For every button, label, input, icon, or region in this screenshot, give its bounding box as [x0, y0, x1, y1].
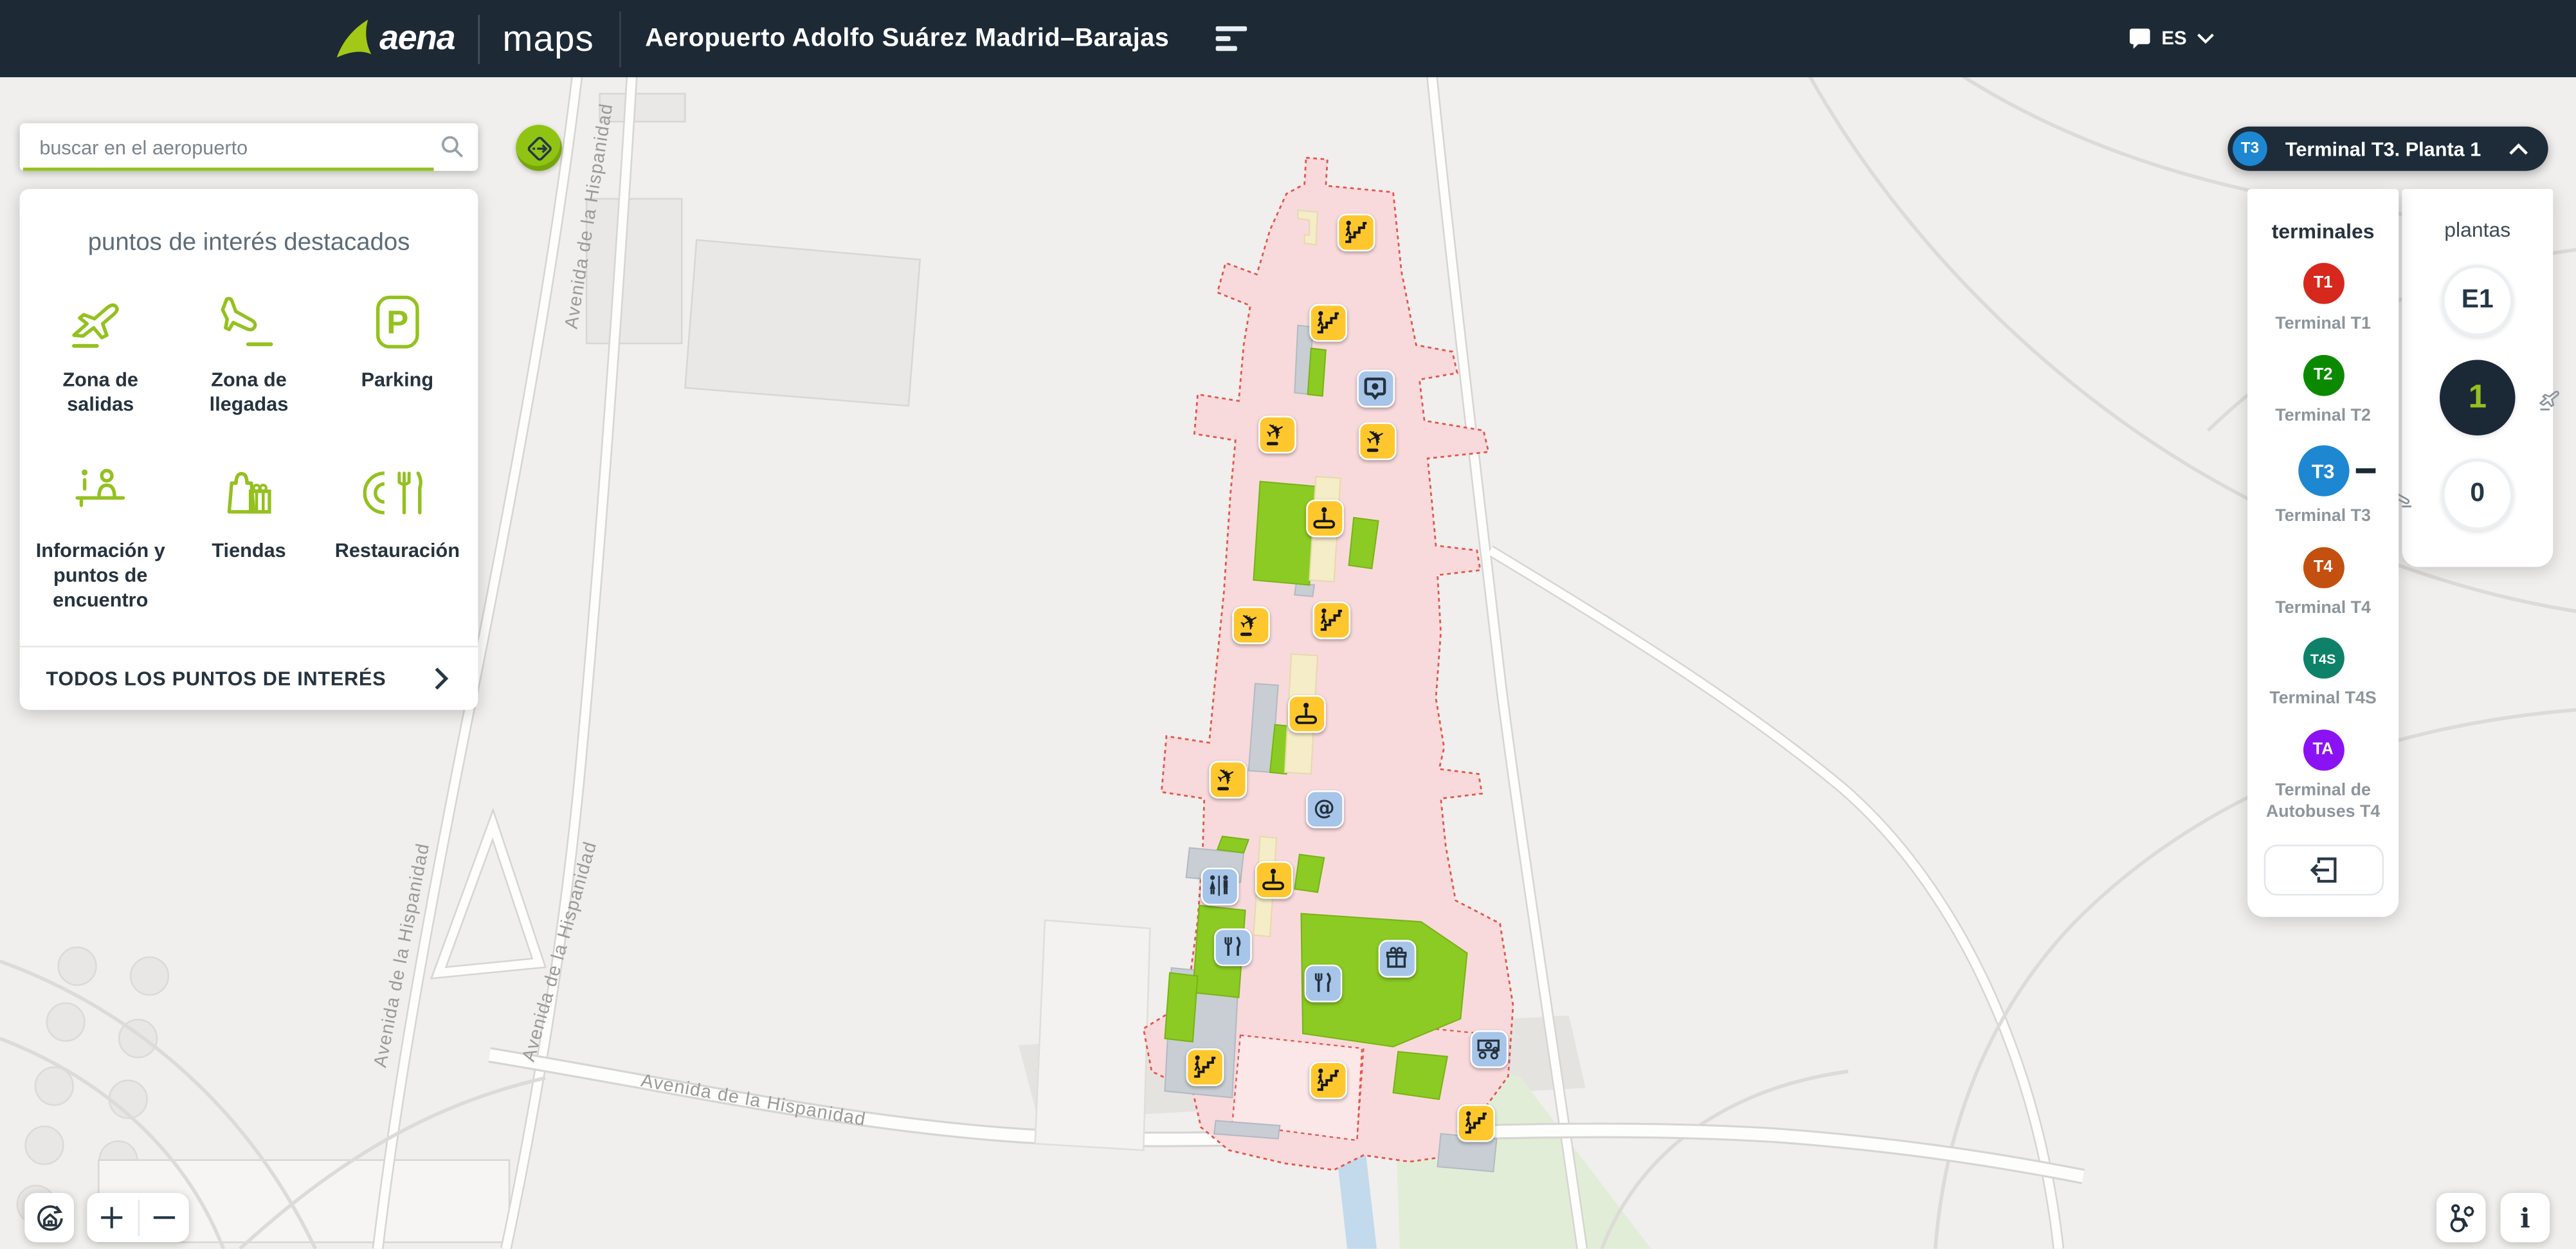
- floor-item-0[interactable]: 0: [2402, 459, 2553, 531]
- zoom-in-button[interactable]: [87, 1193, 137, 1243]
- aena-bird-icon: [334, 17, 373, 60]
- poi-item-information[interactable]: Información y puntos de encuentro: [26, 460, 175, 613]
- plane-departure-icon: [66, 289, 135, 355]
- all-poi-label: TODOS LOS PUNTOS DE INTERÉS: [46, 667, 434, 690]
- divider: [619, 11, 621, 67]
- product-name: maps: [502, 17, 594, 60]
- stairs-marker[interactable]: [1309, 303, 1347, 341]
- poi-heading: puntos de interés destacados: [20, 189, 478, 266]
- svg-text:P: P: [386, 304, 408, 341]
- poi-item-restaurants[interactable]: Restauración: [323, 460, 471, 613]
- floors-panel: plantas E1 1 0: [2402, 189, 2553, 567]
- language-selector[interactable]: ES: [2127, 0, 2215, 77]
- brand-name: aena: [379, 19, 455, 58]
- terminal-floor-pill[interactable]: T3 Terminal T3. Planta 1: [2227, 127, 2548, 171]
- terminal-label: Terminal T4: [2275, 597, 2371, 618]
- poi-item-shops[interactable]: Tiendas: [175, 460, 323, 613]
- minus-icon: [150, 1205, 177, 1231]
- walkway-marker[interactable]: [1305, 498, 1343, 536]
- floor-circle: 0: [2442, 459, 2514, 531]
- poi-label: Zona de llegadas: [183, 368, 314, 417]
- zoom-out-button[interactable]: [139, 1193, 189, 1243]
- walkway-marker[interactable]: [1255, 860, 1293, 898]
- terminal-circle: TA: [2303, 729, 2344, 770]
- accessibility-icon: [2445, 1201, 2478, 1234]
- divider: [478, 14, 480, 64]
- poi-label: Zona de salidas: [35, 368, 166, 417]
- stairs-marker[interactable]: [1336, 213, 1374, 251]
- poi-panel: puntos de interés destacados Zona de sal…: [20, 189, 478, 710]
- search-underline: [23, 168, 434, 171]
- stairs-marker[interactable]: [1312, 601, 1350, 639]
- speech-bubble-icon: [2127, 26, 2152, 51]
- directions-button[interactable]: [516, 125, 562, 171]
- terminal-item-t4[interactable]: T4 Terminal T4: [2247, 547, 2399, 618]
- selected-terminal-dash: [2356, 469, 2376, 473]
- plane-departure-marker[interactable]: ✈: [1231, 605, 1269, 643]
- meeting-point-marker[interactable]: [1356, 369, 1394, 407]
- terminal-label: Terminal T2: [2275, 405, 2371, 426]
- terminal-circle: T4: [2303, 547, 2344, 588]
- poi-label: Información y puntos de encuentro: [35, 539, 166, 613]
- terminal-circle: T4S: [2303, 638, 2344, 679]
- stairs-marker[interactable]: [1456, 1104, 1494, 1142]
- walkway-marker[interactable]: [1287, 694, 1325, 732]
- terminal-item-t2[interactable]: T2 Terminal T2: [2247, 354, 2399, 426]
- terminal-circle: T1: [2303, 263, 2344, 304]
- terminal-label: Terminal T1: [2275, 314, 2371, 334]
- terminal-item-ta[interactable]: TA Terminal de Autobuses T4: [2247, 729, 2399, 822]
- chevron-right-icon: [433, 667, 448, 690]
- exchange-marker[interactable]: [1469, 1030, 1507, 1068]
- collapse-panel-button[interactable]: [2264, 844, 2384, 895]
- terminal-label: Terminal T3: [2275, 506, 2371, 527]
- chevron-down-icon: [2197, 33, 2215, 44]
- terminal-item-t1[interactable]: T1 Terminal T1: [2247, 263, 2399, 334]
- terminals-heading: terminales: [2247, 189, 2399, 243]
- info-desk-icon: [66, 460, 135, 525]
- terminal-badge: T3: [2233, 131, 2267, 166]
- plane-departure-marker[interactable]: ✈: [1208, 760, 1246, 798]
- gift-marker[interactable]: [1377, 939, 1415, 977]
- aena-logo[interactable]: aena: [334, 17, 455, 60]
- terminal-item-t4s[interactable]: T4S Terminal T4S: [2247, 638, 2399, 709]
- exit-icon: [2307, 853, 2341, 888]
- chevron-up-icon: [2508, 142, 2528, 155]
- terminal-label: Terminal de Autobuses T4: [2256, 780, 2391, 821]
- plane-departure-marker[interactable]: ✈: [1258, 415, 1296, 453]
- directions-icon: [525, 134, 552, 161]
- search-input[interactable]: [36, 134, 440, 160]
- terminal-floor-label: Terminal T3. Planta 1: [2285, 137, 2508, 160]
- poi-label: Parking: [361, 368, 433, 392]
- home-reset-icon: [33, 1202, 65, 1234]
- poi-grid: Zona de salidas Zona de llegadas P Parki…: [20, 266, 478, 646]
- plane-arrival-icon: [214, 289, 283, 355]
- stairs-marker[interactable]: [1185, 1048, 1223, 1086]
- poi-label: Restauración: [335, 539, 460, 563]
- floors-heading: plantas: [2402, 189, 2553, 242]
- plane-departure-marker[interactable]: ✈: [1358, 421, 1396, 459]
- poi-label: Tiendas: [212, 539, 286, 563]
- terminal-circle: T2: [2303, 354, 2344, 396]
- reset-view-button[interactable]: [24, 1193, 74, 1243]
- poi-item-arrivals[interactable]: Zona de llegadas: [175, 289, 323, 417]
- restaurant-marker[interactable]: [1213, 927, 1251, 965]
- departure-plane-icon: [2537, 385, 2564, 412]
- terminal-item-t3[interactable]: T3 Terminal T3: [2247, 446, 2399, 527]
- stairs-marker[interactable]: [1309, 1061, 1347, 1099]
- parking-icon: P: [363, 289, 431, 355]
- app: Avenida de la Hispanidad Avenida de la H…: [0, 0, 2576, 1249]
- wc-marker[interactable]: [1200, 867, 1238, 905]
- poi-item-parking[interactable]: P Parking: [323, 289, 471, 417]
- info-icon: i: [2520, 1202, 2530, 1234]
- shopping-icon: [214, 460, 283, 525]
- page-title: Aeropuerto Adolfo Suárez Madrid–Barajas: [645, 24, 1169, 53]
- language-code: ES: [2161, 29, 2186, 49]
- floor-item-1[interactable]: 1: [2402, 360, 2553, 436]
- all-poi-button[interactable]: TODOS LOS PUNTOS DE INTERÉS: [20, 646, 478, 710]
- menu-icon[interactable]: [1215, 26, 1248, 51]
- search-icon[interactable]: [440, 135, 465, 160]
- poi-item-departures[interactable]: Zona de salidas: [26, 289, 175, 417]
- accessibility-button[interactable]: [2436, 1193, 2486, 1243]
- plus-icon: [99, 1205, 125, 1231]
- info-button[interactable]: i: [2501, 1193, 2550, 1243]
- terminal-label: Terminal T4S: [2269, 689, 2377, 709]
- terminal-circle: T3: [2298, 446, 2348, 497]
- floor-circle: E1: [2442, 264, 2514, 336]
- restaurant-icon: [363, 460, 431, 525]
- top-bar: aena maps Aeropuerto Adolfo Suárez Madri…: [0, 0, 2576, 77]
- terminals-panel: terminales T1 Terminal T1 T2 Terminal T2…: [2247, 189, 2399, 917]
- floor-circle: 1: [2440, 360, 2516, 436]
- at-sign-marker[interactable]: @: [1305, 790, 1343, 828]
- zoom-control: [87, 1193, 188, 1243]
- restaurant-marker[interactable]: [1303, 963, 1341, 1001]
- floor-item-e1[interactable]: E1: [2402, 264, 2553, 336]
- search-box: [20, 123, 478, 171]
